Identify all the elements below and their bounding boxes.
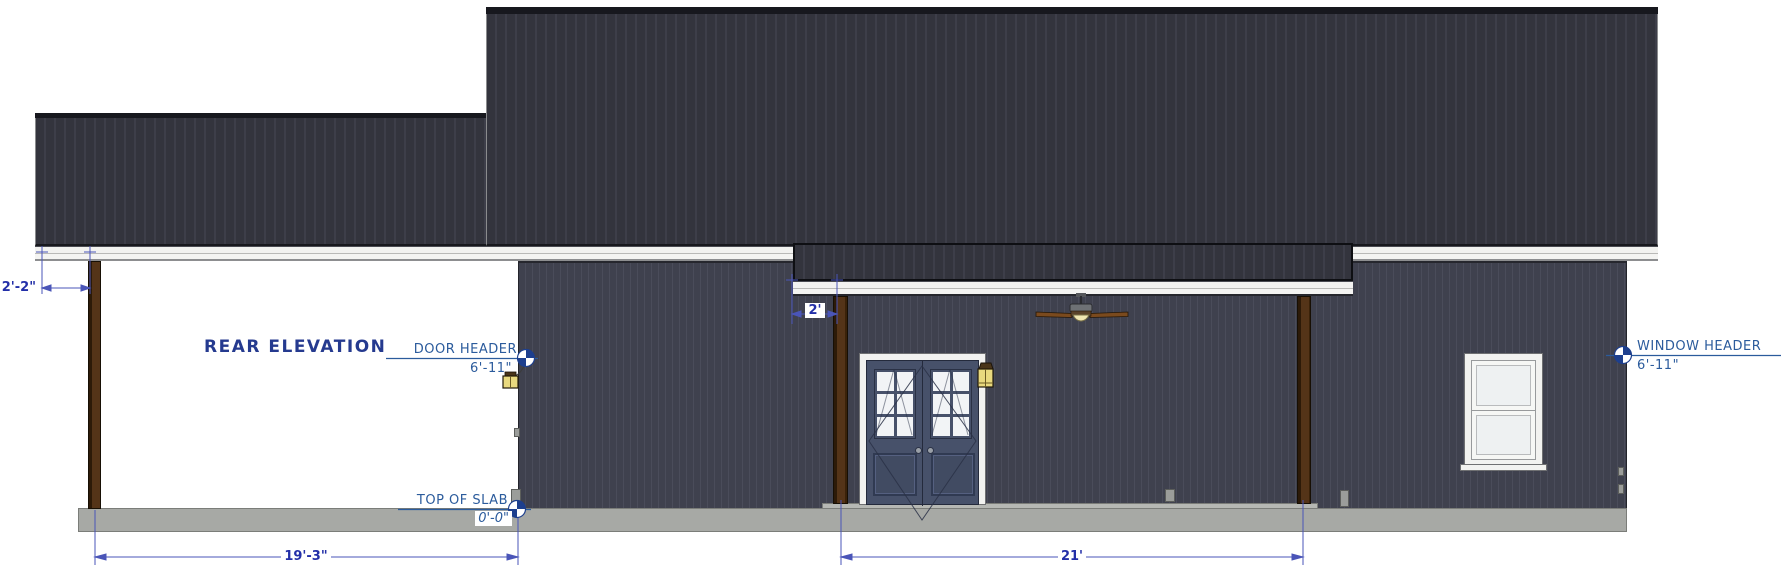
dim-center-overhang-text[interactable]: 2' <box>798 303 832 318</box>
dim-left-porch-width-text[interactable]: 19'-3" <box>266 549 346 564</box>
left-porch-roof-edge-cap <box>35 113 486 118</box>
top-of-slab-label[interactable]: TOP OF SLAB <box>378 493 508 508</box>
door-handle-right <box>927 447 934 454</box>
window-header-value: 6'-11" <box>1637 358 1679 373</box>
main-roof-ridge-cap <box>486 7 1658 14</box>
corner-spigot-right <box>1618 484 1624 494</box>
corner-downspout-left <box>511 489 521 507</box>
dim-center-porch-width-text[interactable]: 21' <box>1040 549 1104 564</box>
door-meeting-stile <box>922 361 923 506</box>
porch-post-left[interactable] <box>88 261 101 509</box>
door-handle-left <box>915 447 922 454</box>
double-door[interactable] <box>859 353 986 505</box>
porch-post-center-left[interactable] <box>833 296 848 504</box>
door-header-label[interactable]: DOOR HEADER <box>380 342 517 357</box>
window-upper-sash <box>1471 360 1536 411</box>
drawing-title[interactable]: REAR ELEVATION <box>204 337 386 357</box>
rear-wall <box>518 261 1627 509</box>
center-porch-fascia <box>793 281 1353 296</box>
window-header-label[interactable]: WINDOW HEADER <box>1637 339 1761 354</box>
left-porch-roof <box>35 113 486 246</box>
door-right-lite-grid <box>930 369 972 439</box>
elevation-drawing: REAR ELEVATION DOOR HEADER 6'-11" WINDOW… <box>0 0 1781 572</box>
window-sill <box>1460 464 1547 471</box>
corner-outlet-left <box>514 428 520 437</box>
main-roof <box>486 7 1658 246</box>
door-right-panel <box>931 453 975 496</box>
hose-spigot <box>1340 490 1349 507</box>
porch-post-center-right[interactable] <box>1297 296 1311 504</box>
dim-left-overhang-text[interactable]: 2'-2" <box>0 280 36 295</box>
corner-outlet-right <box>1618 467 1624 476</box>
door-left-lite-grid <box>874 369 916 439</box>
concrete-slab <box>78 508 1627 532</box>
double-hung-window[interactable] <box>1464 353 1543 465</box>
top-of-slab-value: 0'-0" <box>448 511 512 526</box>
door-left-panel <box>873 453 917 496</box>
door-leaves <box>866 360 979 505</box>
center-porch-roof <box>793 243 1353 281</box>
wall-outlet <box>1165 489 1175 502</box>
window-lower-sash <box>1471 410 1536 460</box>
door-header-value: 6'-11" <box>430 361 512 376</box>
